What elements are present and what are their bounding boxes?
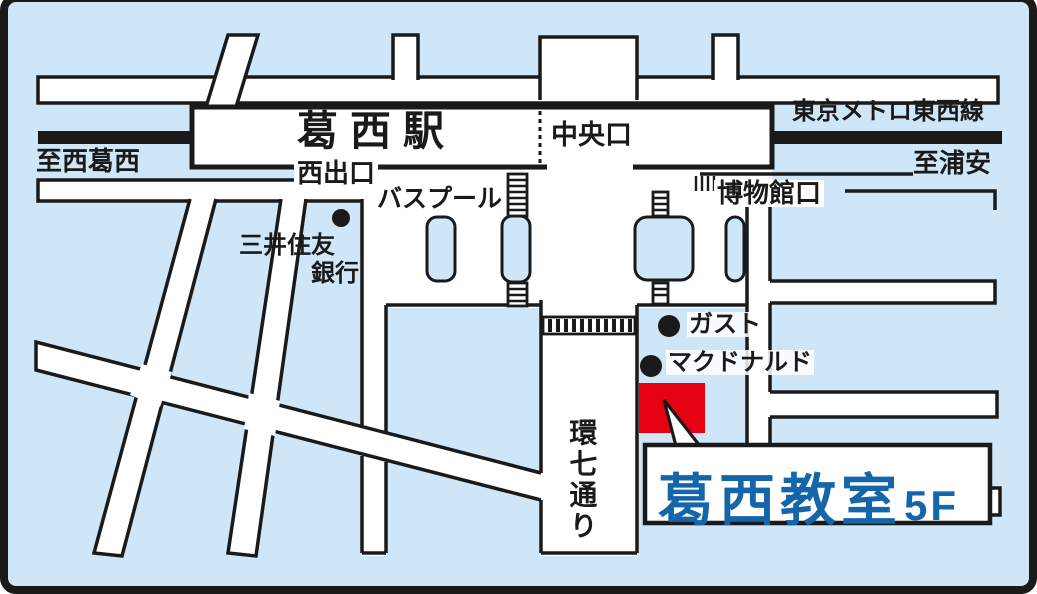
classroom-name: 葛西教室 [658,456,902,537]
east-road-1 [747,281,995,303]
gusto-label: ガスト [687,312,763,337]
north-stub-1 [393,35,418,80]
railway-east-segment [772,131,1002,144]
station-tower-block [540,37,637,100]
stairs-icon [508,174,527,216]
east-road-2 [747,392,997,417]
bus-pool-label: バスプール [377,186,502,212]
gusto-dot [658,315,680,337]
plaza-island [427,217,455,281]
bank-dot [332,209,350,227]
to-urayasu-label: 至浦安 [913,150,991,177]
tozai-line-label: 東京メトロ東西線 [792,99,984,124]
mcdonalds-label: マクドナルド [666,350,814,375]
to-nishikasai-label: 至西葛西 [36,148,140,175]
plaza-island [635,217,693,280]
crosswalk-icon [543,317,635,334]
mcdonalds-dot [640,355,662,377]
stairs-icon [508,283,527,306]
west-vertical-road [362,199,386,556]
plaza-island [502,216,530,282]
stairs-icon [653,283,668,304]
classroom-floor: 5F [904,482,959,530]
museum-exit-label: 博物館口 [714,180,824,207]
railway-west-segment [38,131,192,144]
chuo-exit-label: 中央口 [551,121,632,149]
station-name-label: 葛西駅 [297,110,456,153]
north-stub-2 [713,35,738,80]
bank-label-line2: 銀行 [311,261,359,286]
kannana-street-label: 環七通り [567,418,596,542]
nishi-exit-label: 西出口 [294,160,378,187]
plaza-island [726,217,744,281]
station-building [192,107,772,167]
stairs-icon [653,192,668,216]
bank-label-line1: 三井住友 [239,233,335,258]
station-access-map: 至西葛西 葛西駅 中央口 東京メトロ東西線 至浦安 西出口 バスプール 博物館口… [0,0,1037,594]
classroom-callout-text: 葛西教室 5F [658,456,959,537]
